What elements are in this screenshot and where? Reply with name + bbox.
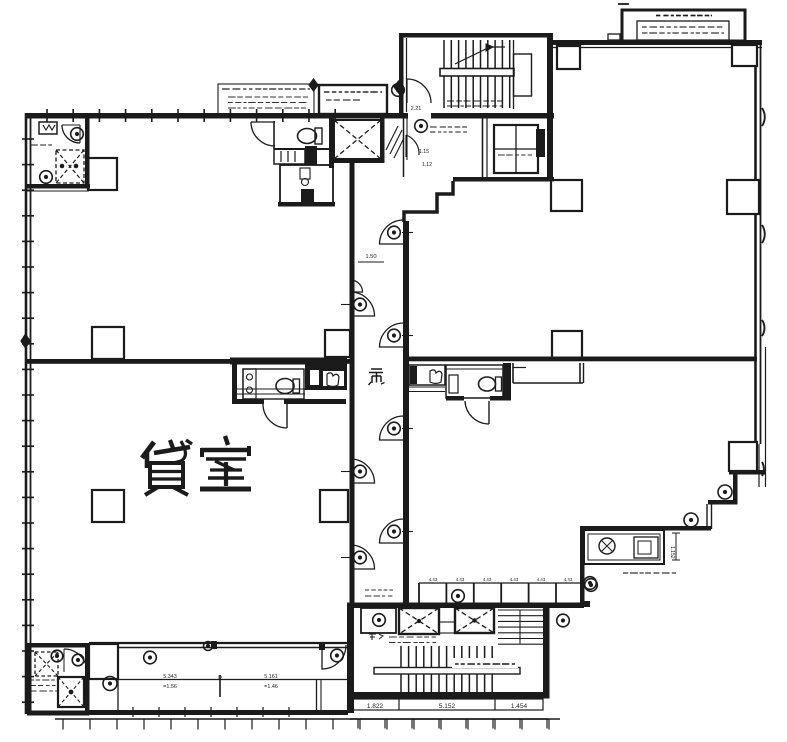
svg-text:5.152: 5.152 — [439, 703, 456, 710]
svg-text:4.43: 4.43 — [564, 577, 573, 582]
svg-text:D: D — [218, 675, 222, 681]
svg-text:4.43: 4.43 — [510, 577, 519, 582]
svg-text:4.43: 4.43 — [456, 577, 465, 582]
svg-text:5.161: 5.161 — [264, 674, 278, 680]
svg-text:1.12: 1.12 — [422, 162, 432, 168]
svg-text:1.15: 1.15 — [419, 149, 429, 155]
svg-text:5.343: 5.343 — [163, 674, 177, 680]
svg-text:4.43: 4.43 — [429, 577, 438, 582]
svg-text:4.43: 4.43 — [483, 577, 492, 582]
svg-text:1.454: 1.454 — [511, 703, 528, 710]
svg-text:=1.56: =1.56 — [163, 684, 177, 690]
svg-text:1.822: 1.822 — [367, 703, 384, 710]
svg-text:=1.46: =1.46 — [264, 684, 278, 690]
svg-text:2.21: 2.21 — [411, 106, 422, 112]
svg-text:1.152: 1.152 — [669, 546, 675, 559]
svg-text:4.43: 4.43 — [537, 577, 546, 582]
svg-text:1.50: 1.50 — [365, 254, 376, 260]
